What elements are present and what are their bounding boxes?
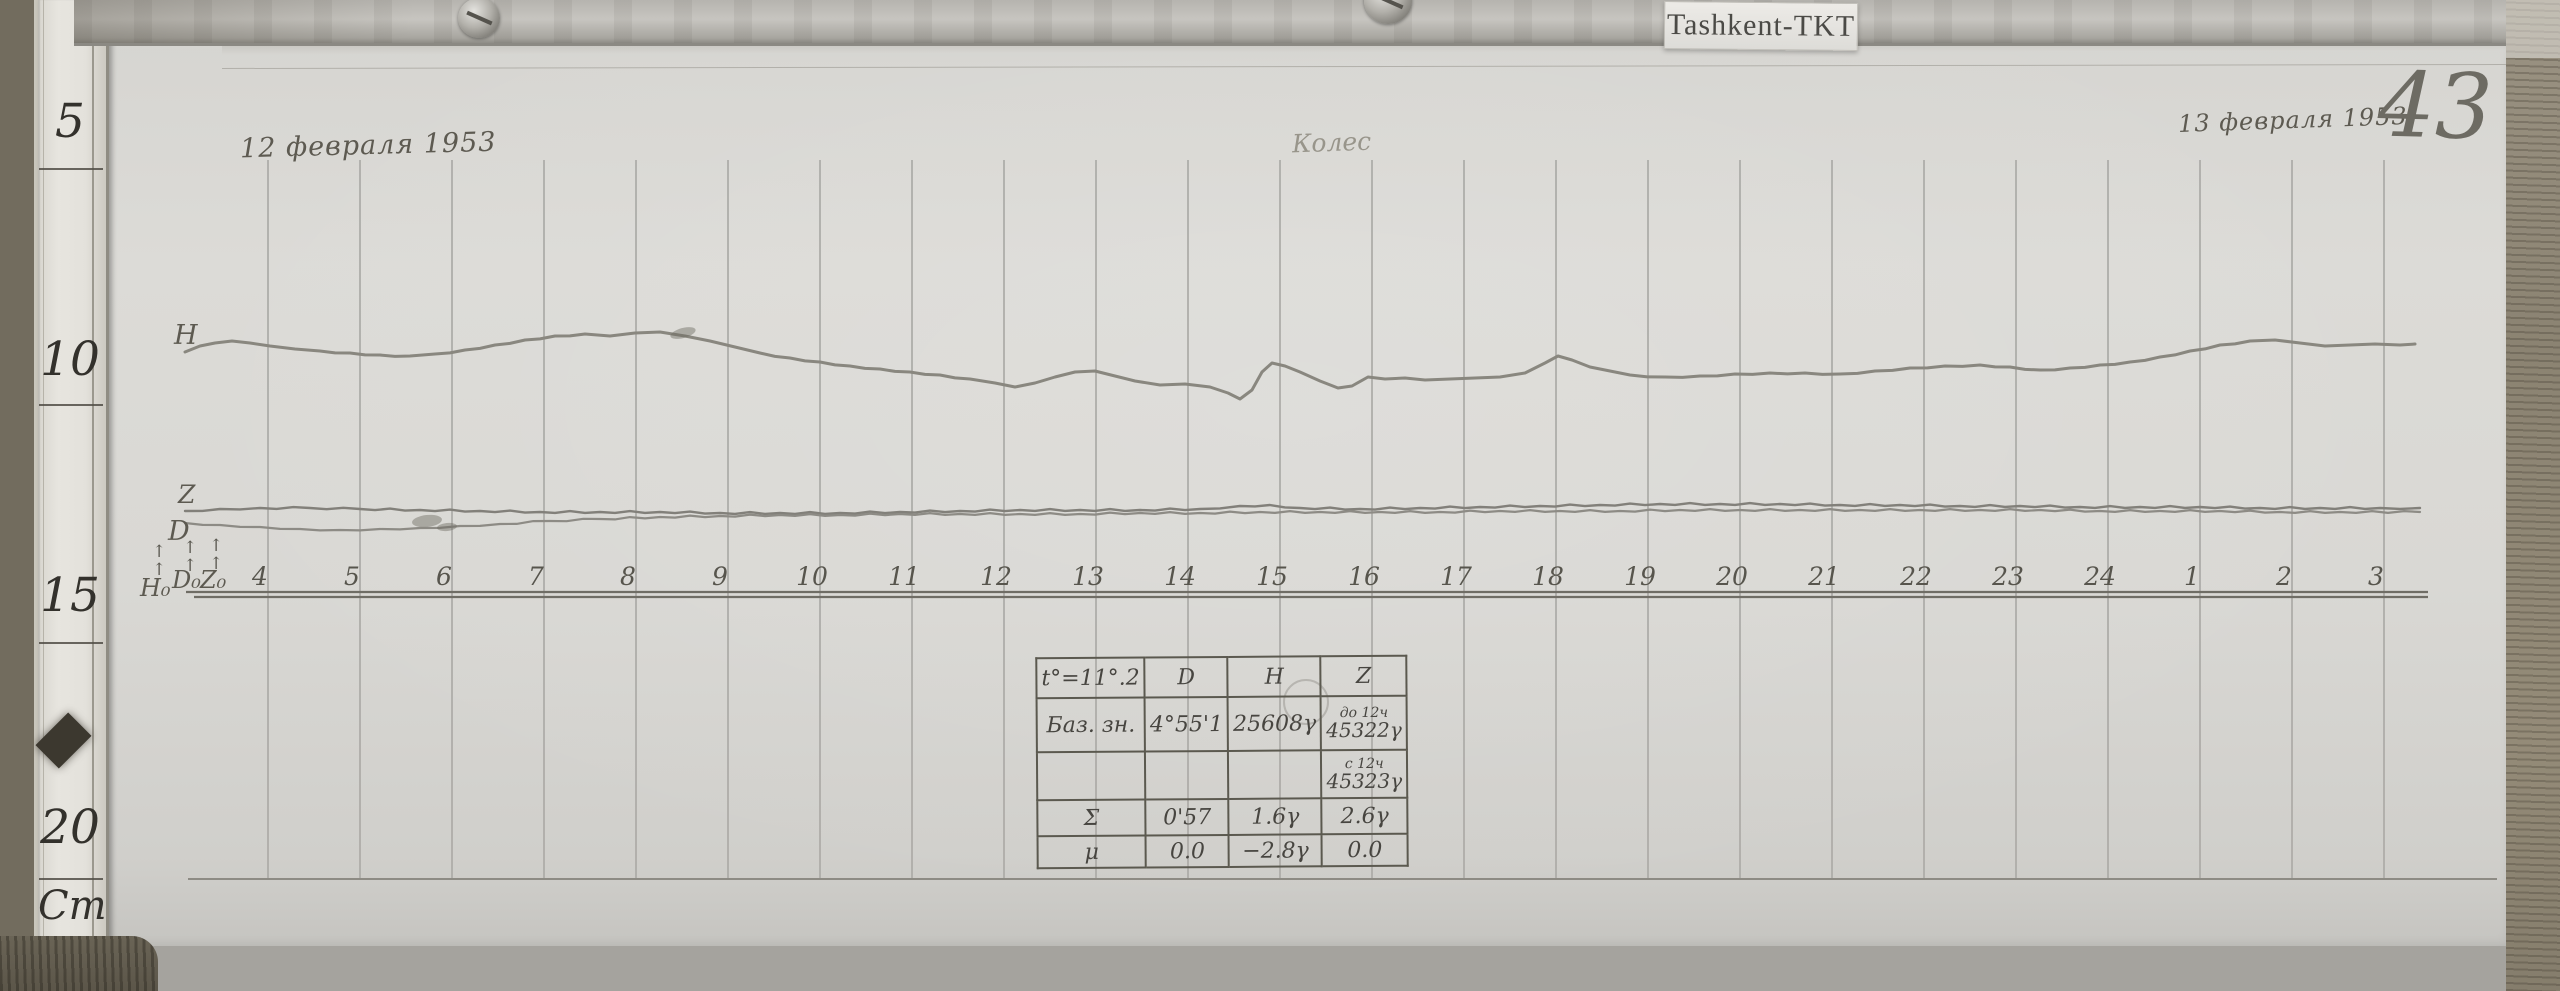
x-tick-label: 19	[1624, 562, 1656, 591]
x-tick-label: 8	[612, 562, 644, 591]
x-tick-label: 7	[520, 562, 552, 591]
paper-bottom-edge	[110, 946, 2506, 991]
up-arrow-icon: ↑	[209, 554, 223, 574]
table-cell: Σ	[1037, 800, 1146, 837]
x-tick-label: 23	[1992, 562, 2024, 591]
table-cell: −2.8γ	[1229, 834, 1322, 867]
trace-label-h: H	[174, 322, 198, 349]
table-cell: Z	[1321, 656, 1407, 697]
table-row: t°=11°.2 D H Z	[1036, 656, 1406, 699]
x-tick-label: 11	[888, 562, 920, 591]
ruler-mark-15: 15	[38, 572, 102, 619]
ruler-division	[39, 168, 103, 170]
x-tick-label: 20	[1716, 562, 1748, 591]
table-row: Баз. зн. 4°55'1 25608γ до 12ч 45322γ	[1037, 696, 1407, 753]
up-arrow-icon: ↑	[209, 536, 223, 556]
x-tick-label: 1	[2176, 562, 2208, 591]
clamp-bar	[74, 0, 2506, 46]
x-tick-label: 18	[1532, 562, 1564, 591]
table-row: μ 0.0 −2.8γ 0.0	[1038, 834, 1408, 869]
x-tick-label: 10	[796, 562, 828, 591]
table-wood-corner	[0, 936, 158, 991]
ruler-division	[39, 878, 103, 880]
time-axis-labels: 456789101112131415161718192021222324123	[0, 562, 2560, 594]
x-tick-label: 2	[2268, 562, 2300, 591]
x-tick-label: 22	[1900, 562, 1932, 591]
up-arrow-icon: ↑	[152, 560, 166, 580]
observer-signature: Колес	[1292, 129, 1372, 157]
ruler-division	[39, 642, 103, 644]
x-tick-label: 3	[2360, 562, 2392, 591]
table-cell: 0.0	[1322, 834, 1408, 867]
table-wood-right	[2506, 0, 2560, 991]
table-cell: μ	[1038, 836, 1146, 869]
x-tick-label: 21	[1808, 562, 1840, 591]
x-tick-label: 5	[336, 562, 368, 591]
table-cell: 25608γ	[1228, 696, 1322, 751]
table-cell: 2.6γ	[1322, 798, 1408, 835]
table-cell-value: 45322γ	[1326, 718, 1402, 741]
table-cell-value: 45323γ	[1327, 769, 1403, 792]
ruler-mark-10: 10	[38, 336, 102, 383]
up-arrow-icon: ↑	[152, 542, 166, 562]
baseline-values-table: t°=11°.2 D H Z Баз. зн. 4°55'1 25608γ до…	[1035, 655, 1409, 870]
x-tick-label: 12	[980, 562, 1012, 591]
x-tick-label: 17	[1440, 562, 1472, 591]
table-wood-highlight	[2506, 0, 2560, 58]
table-cell: 4°55'1	[1145, 697, 1228, 752]
table-cell: до 12ч 45322γ	[1321, 696, 1407, 751]
up-arrow-icon: ↑	[183, 556, 197, 576]
table-cell: t°=11°.2	[1036, 658, 1145, 699]
ruler-unit-cm: Cm	[38, 886, 102, 926]
table-cell: H	[1228, 656, 1321, 697]
table-cell: 1.6γ	[1229, 798, 1322, 835]
table-cell	[1228, 750, 1321, 799]
x-tick-label: 6	[428, 562, 460, 591]
x-tick-label: 13	[1072, 562, 1104, 591]
x-tick-label: 14	[1164, 562, 1196, 591]
x-tick-label: 16	[1348, 562, 1380, 591]
station-name: Tashkent-TKT	[1667, 8, 1856, 44]
table-cell: с 12ч 45323γ	[1321, 750, 1407, 799]
date-start: 12 февраля 1953	[240, 129, 497, 163]
ruler-mark-20: 20	[38, 804, 102, 851]
x-tick-label: 24	[2084, 562, 2116, 591]
table-cell	[1037, 752, 1146, 801]
up-arrow-icon: ↑	[183, 538, 197, 558]
sheet-number: 43	[2377, 61, 2494, 154]
trace-label-z: Z	[178, 482, 195, 507]
ruler-division	[39, 404, 103, 406]
table-wood-left	[0, 0, 34, 991]
x-tick-label: 9	[704, 562, 736, 591]
table-cell	[1145, 751, 1228, 800]
table-cell: D	[1145, 657, 1228, 698]
table-cell: 0.0	[1146, 835, 1229, 868]
x-tick-label: 4	[244, 562, 276, 591]
magnetogram-scan: 456789101112131415161718192021222324123 …	[0, 0, 2560, 991]
date-end: 13 февраля 1953	[2178, 104, 2408, 136]
station-label-card: Tashkent-TKT	[1664, 1, 1858, 51]
table-row: с 12ч 45323γ	[1037, 750, 1407, 801]
x-tick-label: 15	[1256, 562, 1288, 591]
table-cell: 0'57	[1146, 799, 1229, 836]
ruler-mark-5: 5	[38, 98, 102, 145]
table-row: Σ 0'57 1.6γ 2.6γ	[1037, 798, 1407, 837]
table-cell: Баз. зн.	[1037, 698, 1146, 753]
